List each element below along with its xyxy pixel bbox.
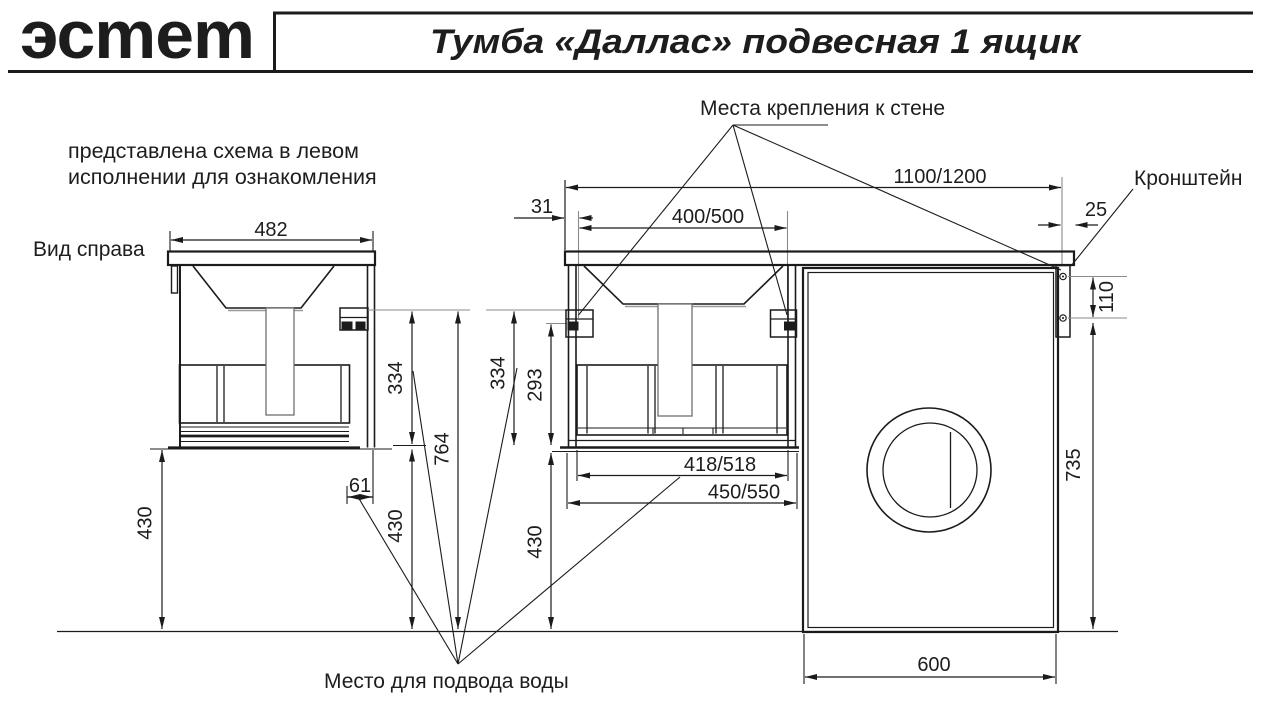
washer-body — [803, 268, 1058, 632]
orientation-note: представлена схема в левом исполнении дл… — [68, 139, 377, 189]
side-drain-pipe — [266, 308, 294, 415]
washing-machine: 110 735 600 — [803, 266, 1127, 685]
vertical-dimensions: 430 334 430 764 334 293 430 — [135, 310, 568, 629]
bracket-hole-center — [1062, 276, 1064, 278]
wall-mount-label: Места крепления к стене — [700, 97, 945, 120]
water-supply-callout: Место для подвода воды — [324, 368, 680, 693]
dim-600: 600 — [917, 654, 950, 676]
dim-764: 764 — [432, 432, 454, 465]
side-sink-basin — [193, 266, 334, 308]
countertop — [565, 252, 1074, 266]
dim-25: 25 — [1085, 199, 1107, 221]
leader-line — [458, 477, 680, 664]
bracket-pad — [356, 322, 366, 330]
washer-door-outer — [867, 408, 991, 532]
note-line-1: представлена схема в левом — [68, 139, 359, 163]
brand-logo: эсmеm — [20, 0, 254, 73]
washer-door-inner — [883, 423, 977, 517]
leader-line — [358, 497, 458, 664]
page-title: Тумба «Даллас» подвесная 1 ящик — [430, 23, 1082, 61]
side-mount-bracket — [340, 308, 368, 330]
water-supply-label: Место для подвода воды — [324, 670, 569, 693]
dim-418-518: 418/518 — [684, 454, 756, 476]
leader-line — [733, 125, 1061, 270]
leader-line — [413, 371, 458, 664]
bracket-hole-center — [1062, 317, 1064, 319]
side-countertop — [168, 252, 375, 266]
note-line-2: исполнении для ознакомления — [68, 165, 377, 189]
dim-430-side: 430 — [385, 509, 407, 542]
technical-drawing: эсmеm Тумба «Даллас» подвесная 1 ящик пр… — [0, 0, 1261, 702]
bracket-pad — [784, 322, 795, 331]
dim-334-side: 334 — [385, 361, 407, 394]
dim-31: 31 — [531, 196, 553, 218]
leader-line — [458, 368, 517, 664]
dim-450-550: 450/550 — [708, 482, 780, 504]
side-view-label: Вид справа — [33, 238, 145, 261]
dim-430-front: 430 — [525, 525, 547, 558]
side-drawer-box — [180, 365, 350, 423]
dim-334-front: 334 — [488, 356, 510, 389]
dim-61: 61 — [349, 475, 371, 497]
bracket-pad — [568, 322, 579, 331]
side-view: Вид справа 482 — [33, 219, 392, 504]
dim-293: 293 — [525, 368, 547, 401]
dim-735: 735 — [1063, 448, 1085, 481]
dim-400-500: 400/500 — [672, 206, 744, 228]
bracket-pad — [342, 322, 353, 330]
dim-110: 110 — [1096, 281, 1118, 313]
page: эсmеm Тумба «Даллас» подвесная 1 ящик пр… — [0, 0, 1261, 702]
front-mount-bracket-right — [771, 310, 797, 337]
front-drain-pipe — [658, 304, 692, 416]
side-wall-trim — [172, 266, 178, 293]
bracket-label: Кронштейн — [1134, 167, 1242, 190]
dim-482: 482 — [254, 219, 287, 241]
dim-1100-1200: 1100/1200 — [893, 166, 986, 188]
washer-body-inner — [808, 273, 1054, 628]
front-view: 1100/1200 31 400/500 25 — [514, 166, 1107, 509]
wall-mount-callout: Места крепления к стене — [579, 97, 1062, 315]
header: эсmеm Тумба «Даллас» подвесная 1 ящик — [8, 0, 1253, 73]
dim-430-left: 430 — [135, 506, 157, 539]
